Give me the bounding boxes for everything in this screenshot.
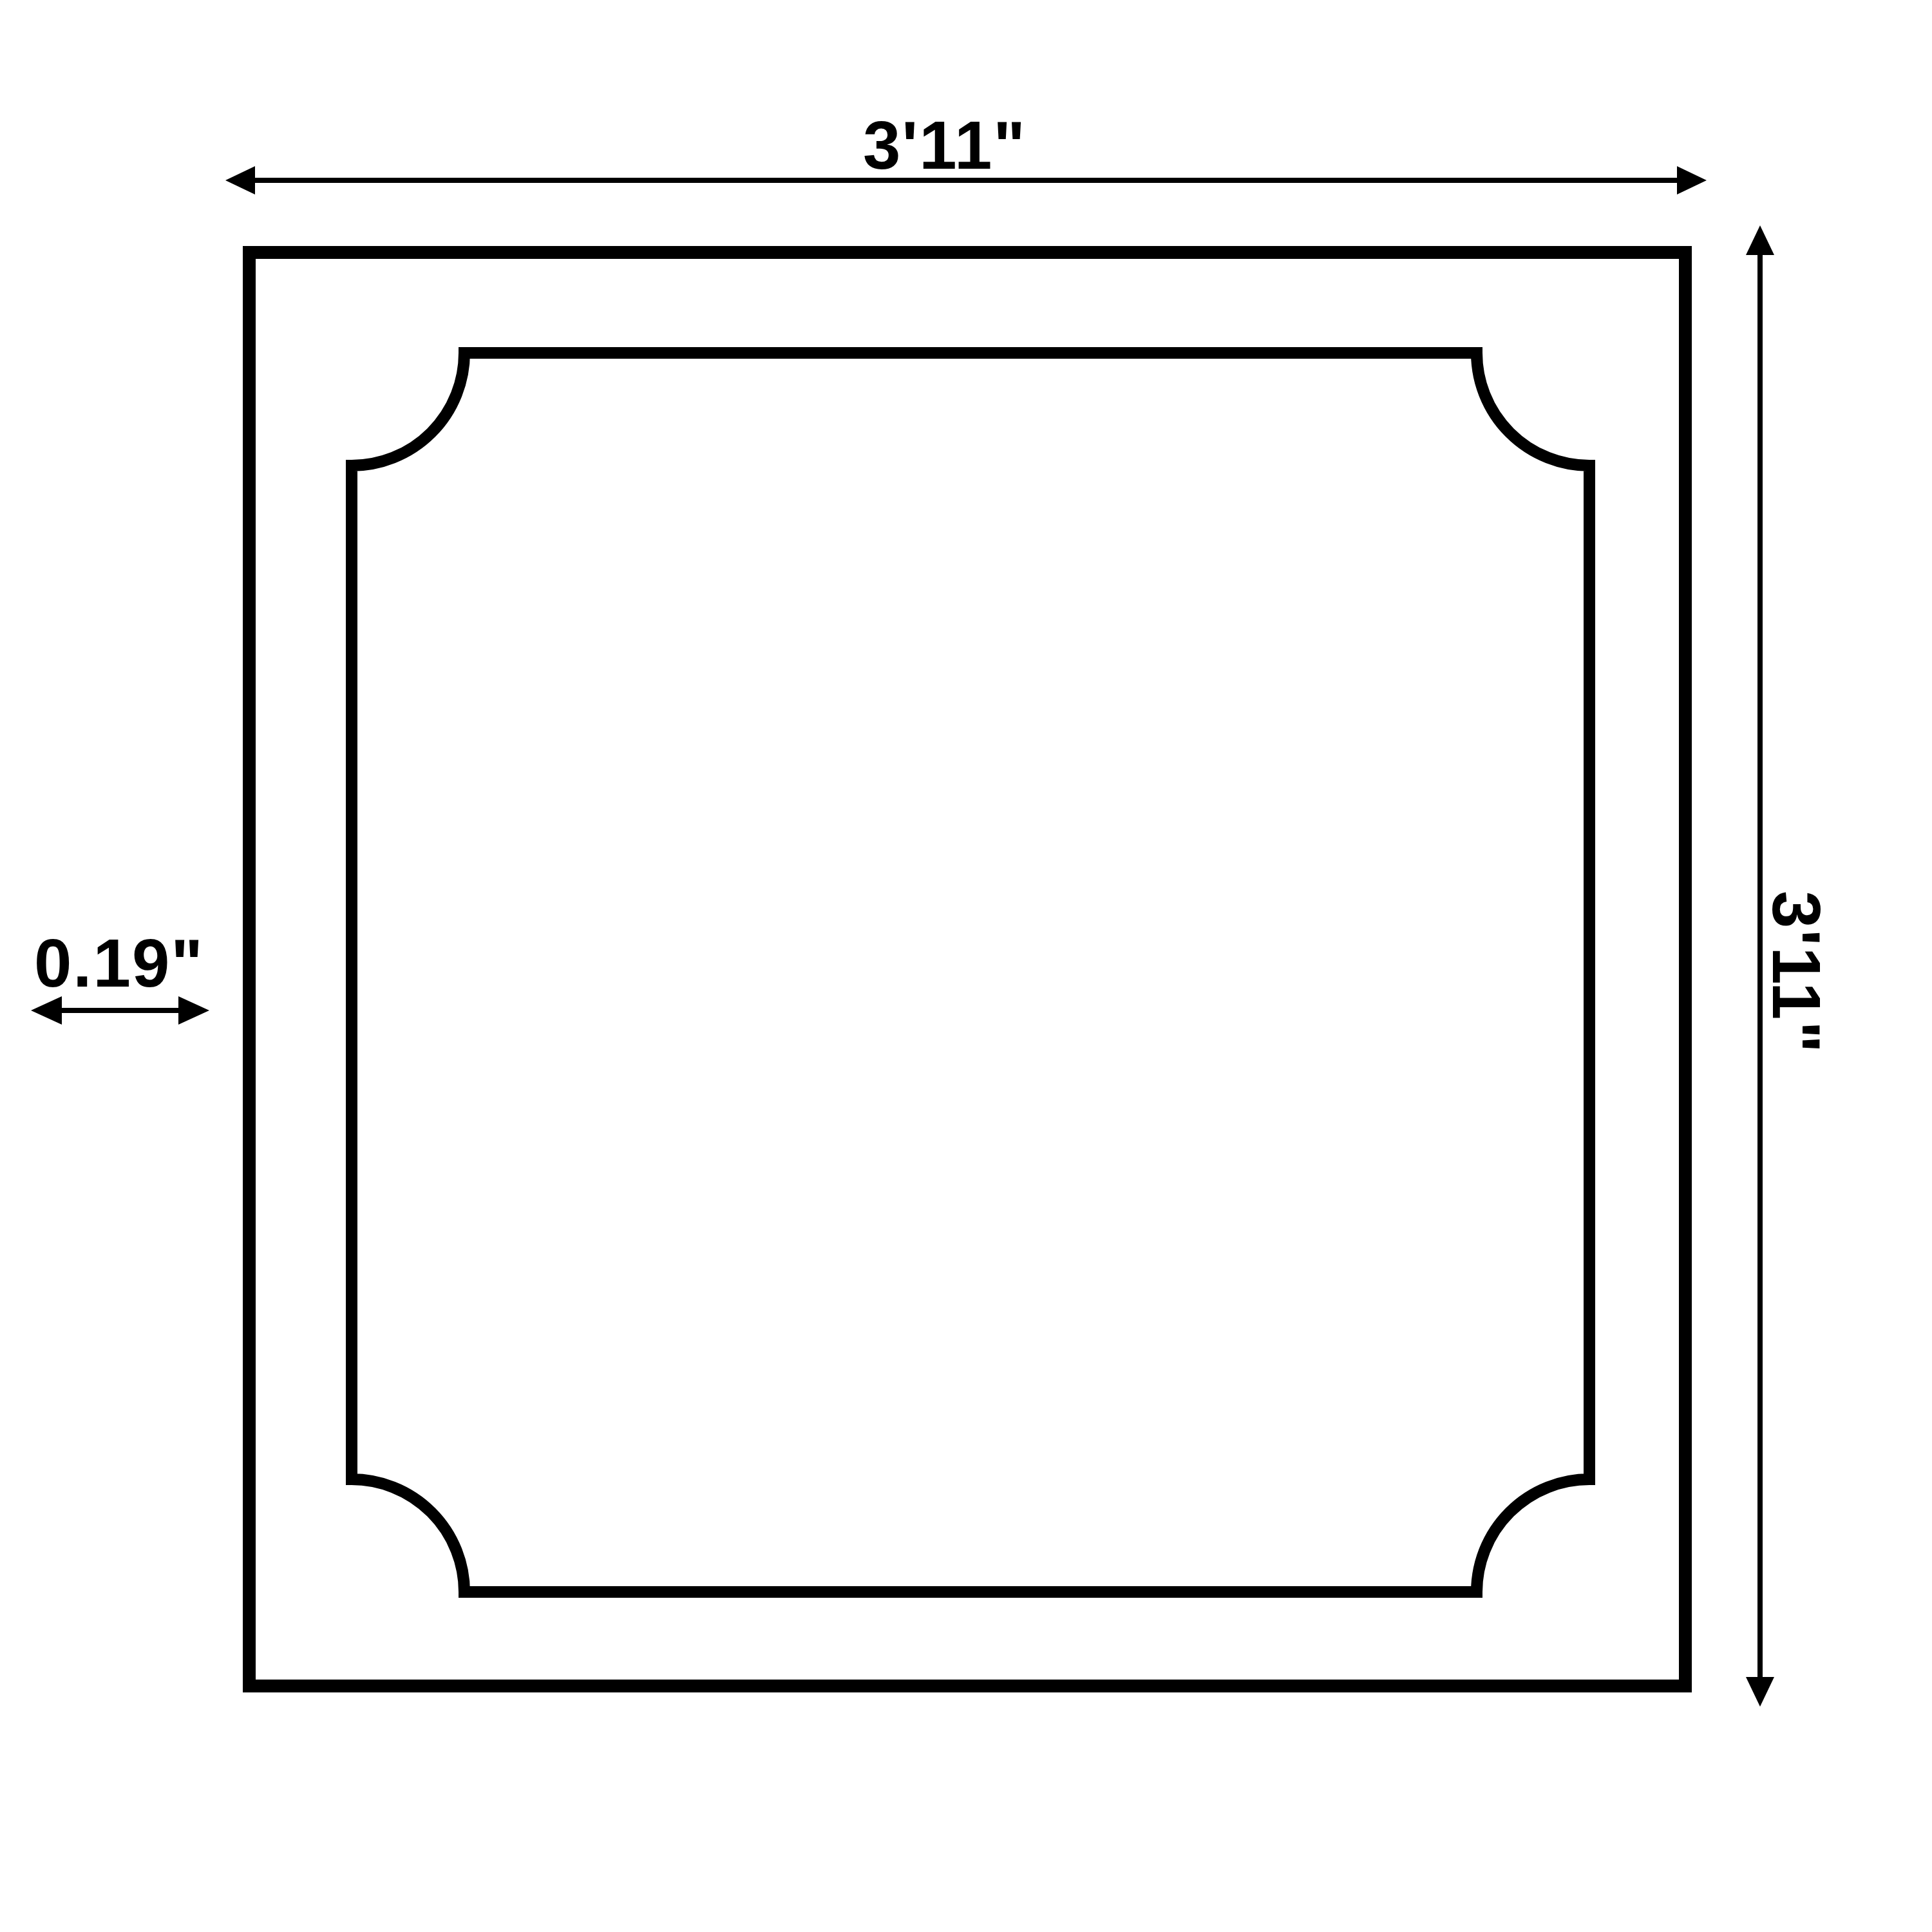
dimension-diagram: 3'11" 3'11" 0.19" [0,0,1932,1932]
thickness-dimension: 0.19" [31,925,209,1025]
width-dimension: 3'11" [225,108,1707,194]
arrowhead-left-icon [225,166,255,194]
arrowhead-down-icon [1746,1677,1774,1707]
thickness-dimension-label: 0.19" [34,925,204,1001]
outer-frame-outline [249,252,1685,1686]
inner-panel-outline [352,353,1589,1592]
height-dimension: 3'11" [1746,225,1834,1707]
arrowhead-right-icon [1677,166,1707,194]
drawing-canvas: 3'11" 3'11" 0.19" [0,0,1932,1932]
width-dimension-label: 3'11" [863,108,1027,183]
arrowhead-up-icon [1746,225,1774,255]
height-dimension-label: 3'11" [1759,891,1834,1054]
